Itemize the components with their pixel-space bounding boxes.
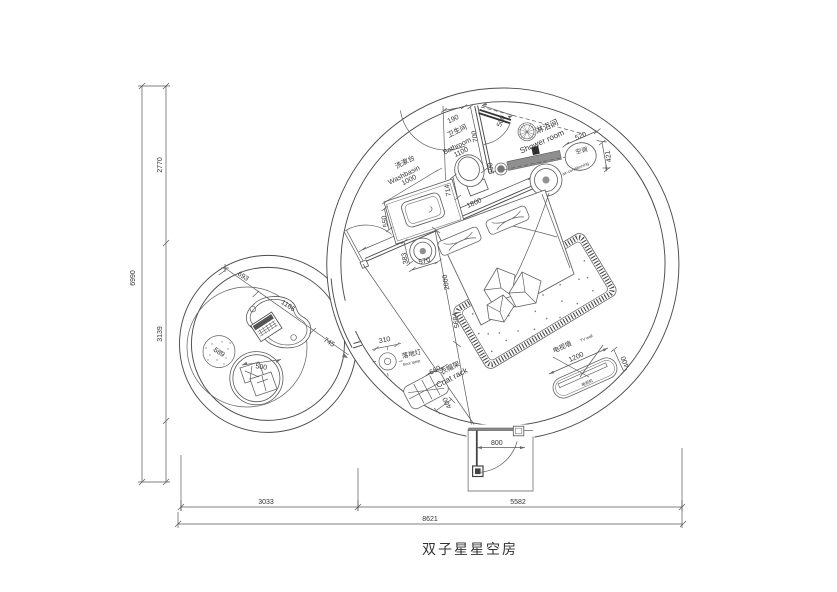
- svg-text:8621: 8621: [422, 516, 438, 523]
- svg-text:2770: 2770: [157, 157, 164, 173]
- svg-text:3139: 3139: [157, 326, 164, 342]
- svg-text:800: 800: [491, 440, 503, 447]
- svg-text:5582: 5582: [510, 499, 526, 506]
- svg-text:3033: 3033: [258, 499, 274, 506]
- svg-text:6990: 6990: [130, 270, 137, 286]
- svg-text:双子星星空房: 双子星星空房: [422, 541, 518, 557]
